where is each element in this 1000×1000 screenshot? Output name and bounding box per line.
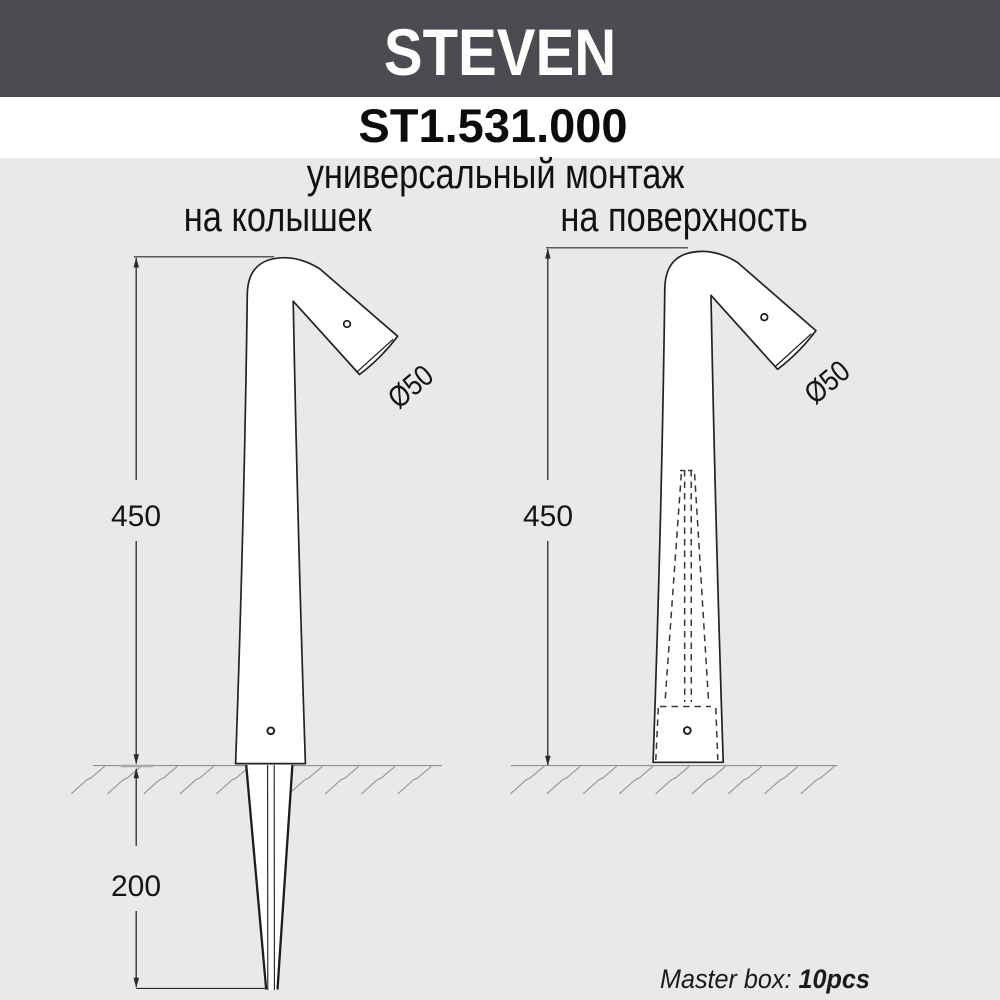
svg-text:450: 450 [523, 500, 573, 533]
svg-text:Ø50: Ø50 [798, 354, 856, 411]
svg-text:200: 200 [111, 870, 161, 903]
svg-text:Ø50: Ø50 [381, 358, 439, 415]
svg-text:450: 450 [111, 500, 161, 533]
